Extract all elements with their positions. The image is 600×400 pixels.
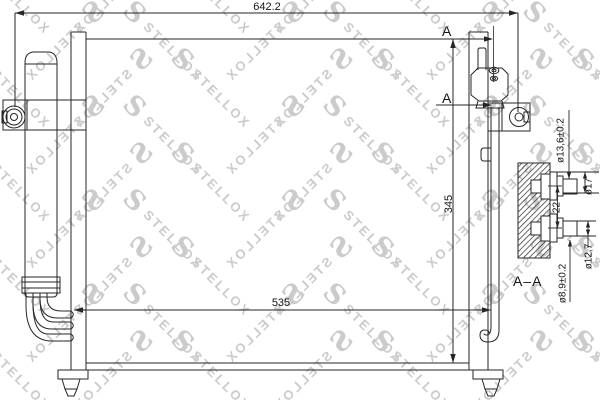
dim-core-width-label: 535 xyxy=(267,297,295,309)
bottom-feet xyxy=(58,370,503,396)
section-detail xyxy=(518,163,577,258)
condenser-core xyxy=(71,32,488,370)
drawing-linework xyxy=(0,0,600,400)
right-mounting-bracket xyxy=(488,103,530,131)
receiver-drier xyxy=(22,52,60,297)
elbow-pipes xyxy=(26,293,73,341)
section-marker-bottom: A xyxy=(442,92,451,104)
dim-overall-width-label: 642.2 xyxy=(249,1,285,13)
right-pipe xyxy=(480,107,499,342)
section-marker-top: A xyxy=(442,25,451,37)
section-title: A–A xyxy=(513,275,542,287)
dim-lower-tube-label: ø8,9±0.2 xyxy=(558,255,569,313)
condenser-technical-drawing: SSTELLOXSSTELLOXSSTELLOXSSTELLOXSSTELLOX… xyxy=(0,0,600,400)
dim-lower-flange-label: ø12,7 xyxy=(584,238,595,276)
dim-upper-flange-label: ø17 xyxy=(584,172,595,202)
dim-port-spacing-label: 22 xyxy=(552,197,563,219)
dim-upper-tube-label: ø13,6±0.2 xyxy=(556,107,567,175)
dim-core-height-label: 345 xyxy=(443,190,455,218)
